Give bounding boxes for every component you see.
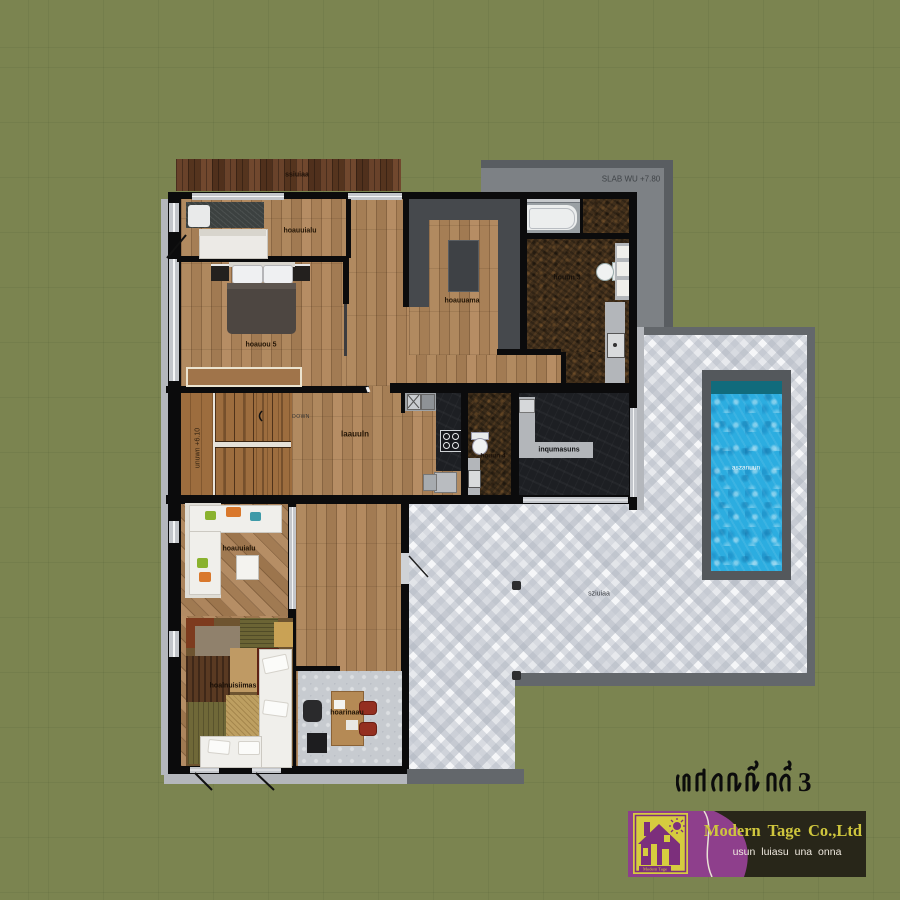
svg-text:3: 3: [798, 767, 812, 794]
svg-text:Modern Tage: Modern Tage: [643, 867, 667, 872]
